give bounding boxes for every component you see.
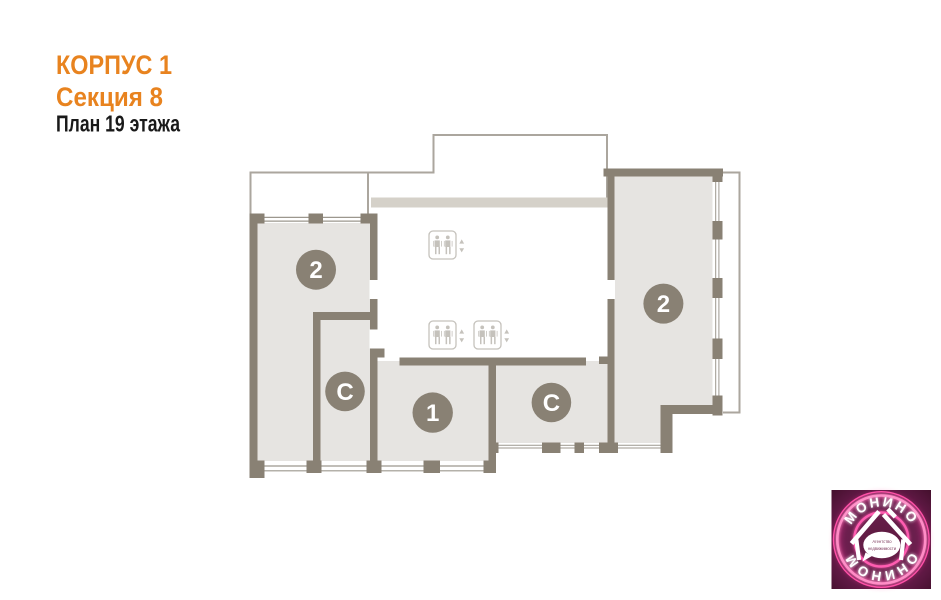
svg-text:С: С — [336, 379, 353, 406]
svg-text:План 19 этажа: План 19 этажа — [56, 111, 180, 137]
svg-text:Секция 8: Секция 8 — [56, 82, 163, 112]
svg-text:1: 1 — [426, 400, 439, 427]
svg-text:2: 2 — [309, 257, 322, 284]
svg-text:Агентство: Агентство — [872, 539, 892, 544]
svg-text:КОРПУС 1: КОРПУС 1 — [56, 50, 172, 80]
svg-text:С: С — [543, 390, 560, 417]
svg-text:недвижимости: недвижимости — [868, 546, 897, 551]
svg-text:2: 2 — [657, 291, 670, 318]
